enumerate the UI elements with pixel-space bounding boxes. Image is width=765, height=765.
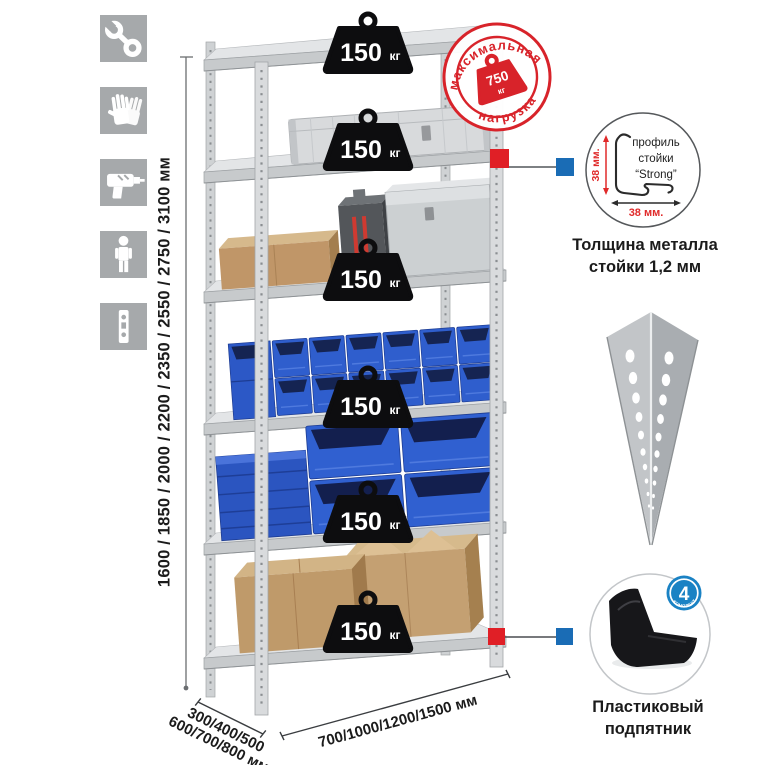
plastic-foot-circle: 4 В КОМПЛЕКТЕ xyxy=(590,574,710,694)
foot-callout-connector xyxy=(488,628,573,645)
svg-text:150: 150 xyxy=(340,618,382,646)
svg-text:кг: кг xyxy=(389,628,400,642)
svg-text:кг: кг xyxy=(389,403,400,417)
svg-text:кг: кг xyxy=(389,146,400,160)
plastic-foot-caption: Пластиковый подпятник xyxy=(538,697,758,741)
svg-text:стойки: стойки xyxy=(638,153,673,165)
svg-text:кг: кг xyxy=(389,276,400,290)
red-marker-square xyxy=(490,149,509,168)
height-dimension-label: 1600 / 1850 / 2000 / 2200 / 2350 / 2550 … xyxy=(156,157,175,587)
profile-detail-circle: 38 мм. 38 мм. профиль стойки “Strong” xyxy=(586,113,700,227)
svg-text:150: 150 xyxy=(340,508,382,536)
angle-post-image xyxy=(607,312,698,545)
quantity-badge: 4 В КОМПЛЕКТЕ xyxy=(667,576,702,611)
shelving-rack-infographic: 150 кг 150 кг 150 кг 150 кг xyxy=(0,0,765,765)
svg-text:150: 150 xyxy=(340,39,382,67)
svg-text:150: 150 xyxy=(340,266,382,294)
metal-case xyxy=(385,177,503,277)
svg-text:4: 4 xyxy=(679,584,690,605)
blue-marker-square xyxy=(556,628,573,645)
profile-thickness-caption: Толщина металла стойки 1,2 мм xyxy=(535,235,755,279)
svg-text:кг: кг xyxy=(389,49,400,63)
cardboard-box xyxy=(218,230,341,290)
svg-text:“Strong”: “Strong” xyxy=(635,169,677,181)
svg-text:38 мм.: 38 мм. xyxy=(629,207,664,219)
blue-marker-square xyxy=(556,158,574,176)
svg-text:150: 150 xyxy=(340,136,382,164)
load-badge: 150 кг xyxy=(325,14,411,72)
svg-text:профиль: профиль xyxy=(632,137,680,149)
svg-text:38 мм.: 38 мм. xyxy=(590,148,602,181)
main-drawing: 150 кг 150 кг 150 кг 150 кг xyxy=(0,0,765,765)
height-dimension-line xyxy=(180,57,193,690)
svg-text:кг: кг xyxy=(389,518,400,532)
svg-text:150: 150 xyxy=(340,393,382,421)
red-marker-square xyxy=(488,628,505,645)
